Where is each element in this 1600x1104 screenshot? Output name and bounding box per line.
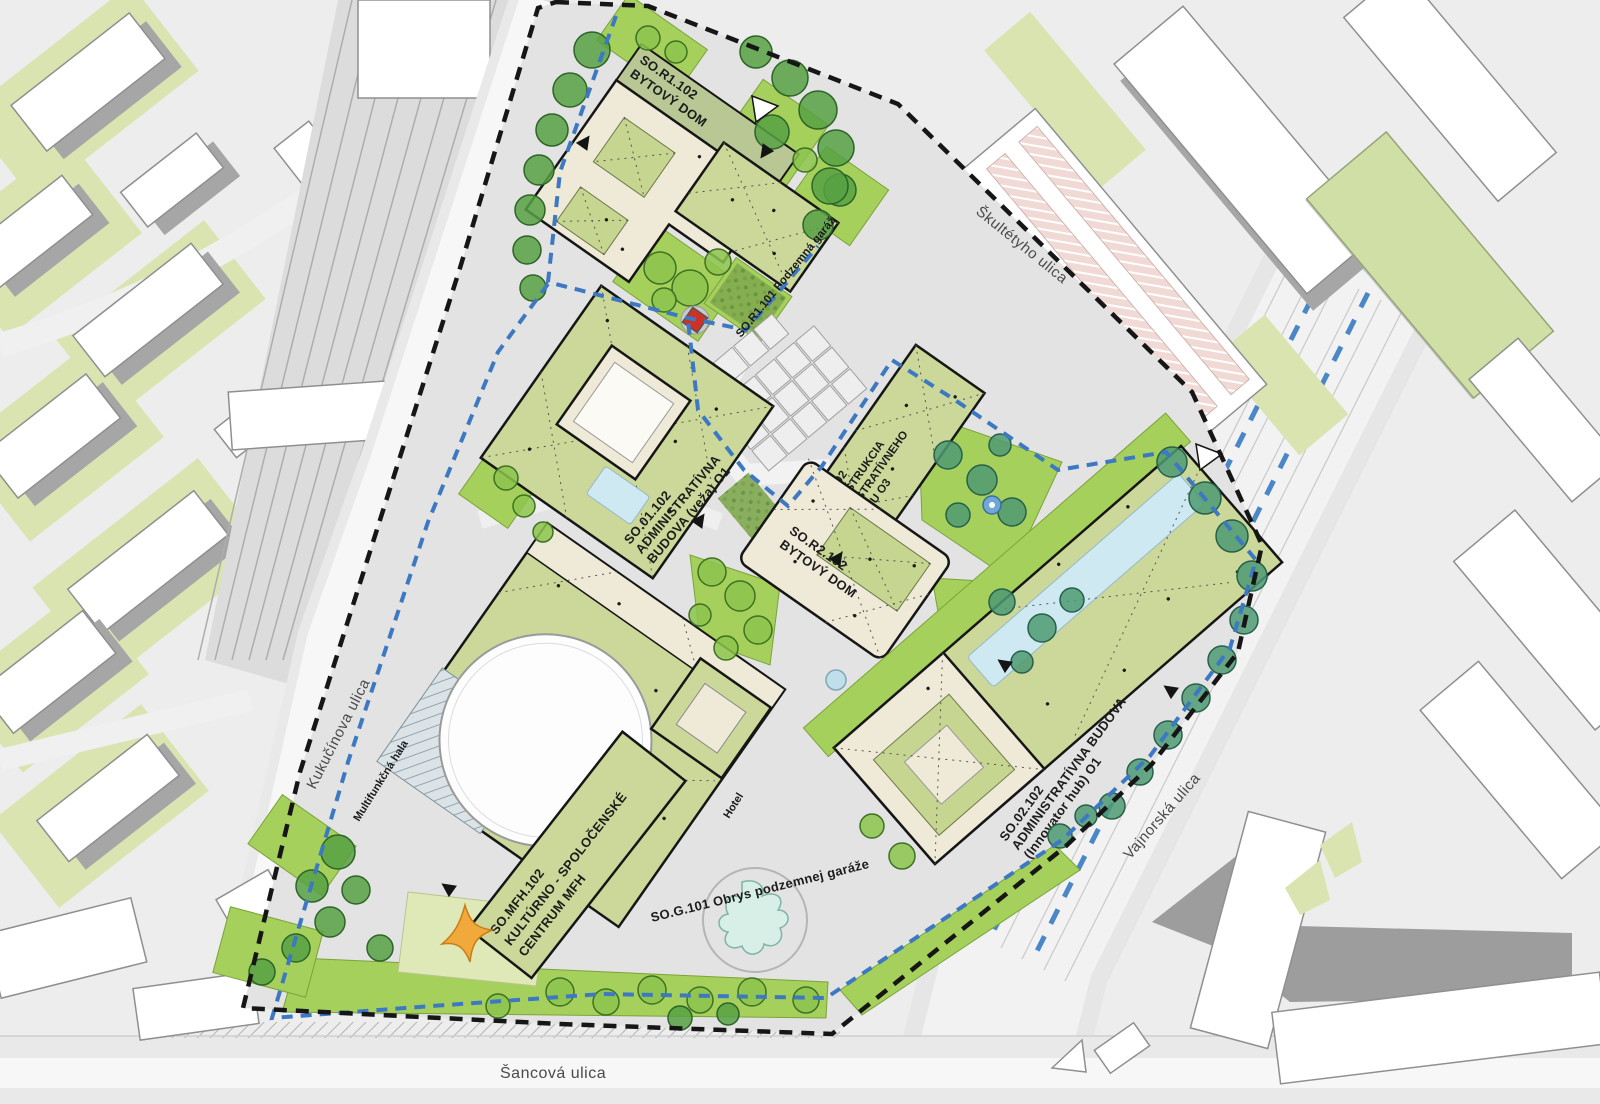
station-building — [358, 0, 490, 98]
small-pond — [826, 670, 846, 690]
masterplan-svg: SO.R1.102 BYTOVÝ DOM SO.01.102 ADMINISTR… — [0, 0, 1600, 1104]
street-label-sancova: Šancová ulica — [500, 1063, 606, 1082]
masterplan-canvas: SO.R1.102 BYTOVÝ DOM SO.01.102 ADMINISTR… — [0, 0, 1600, 1104]
